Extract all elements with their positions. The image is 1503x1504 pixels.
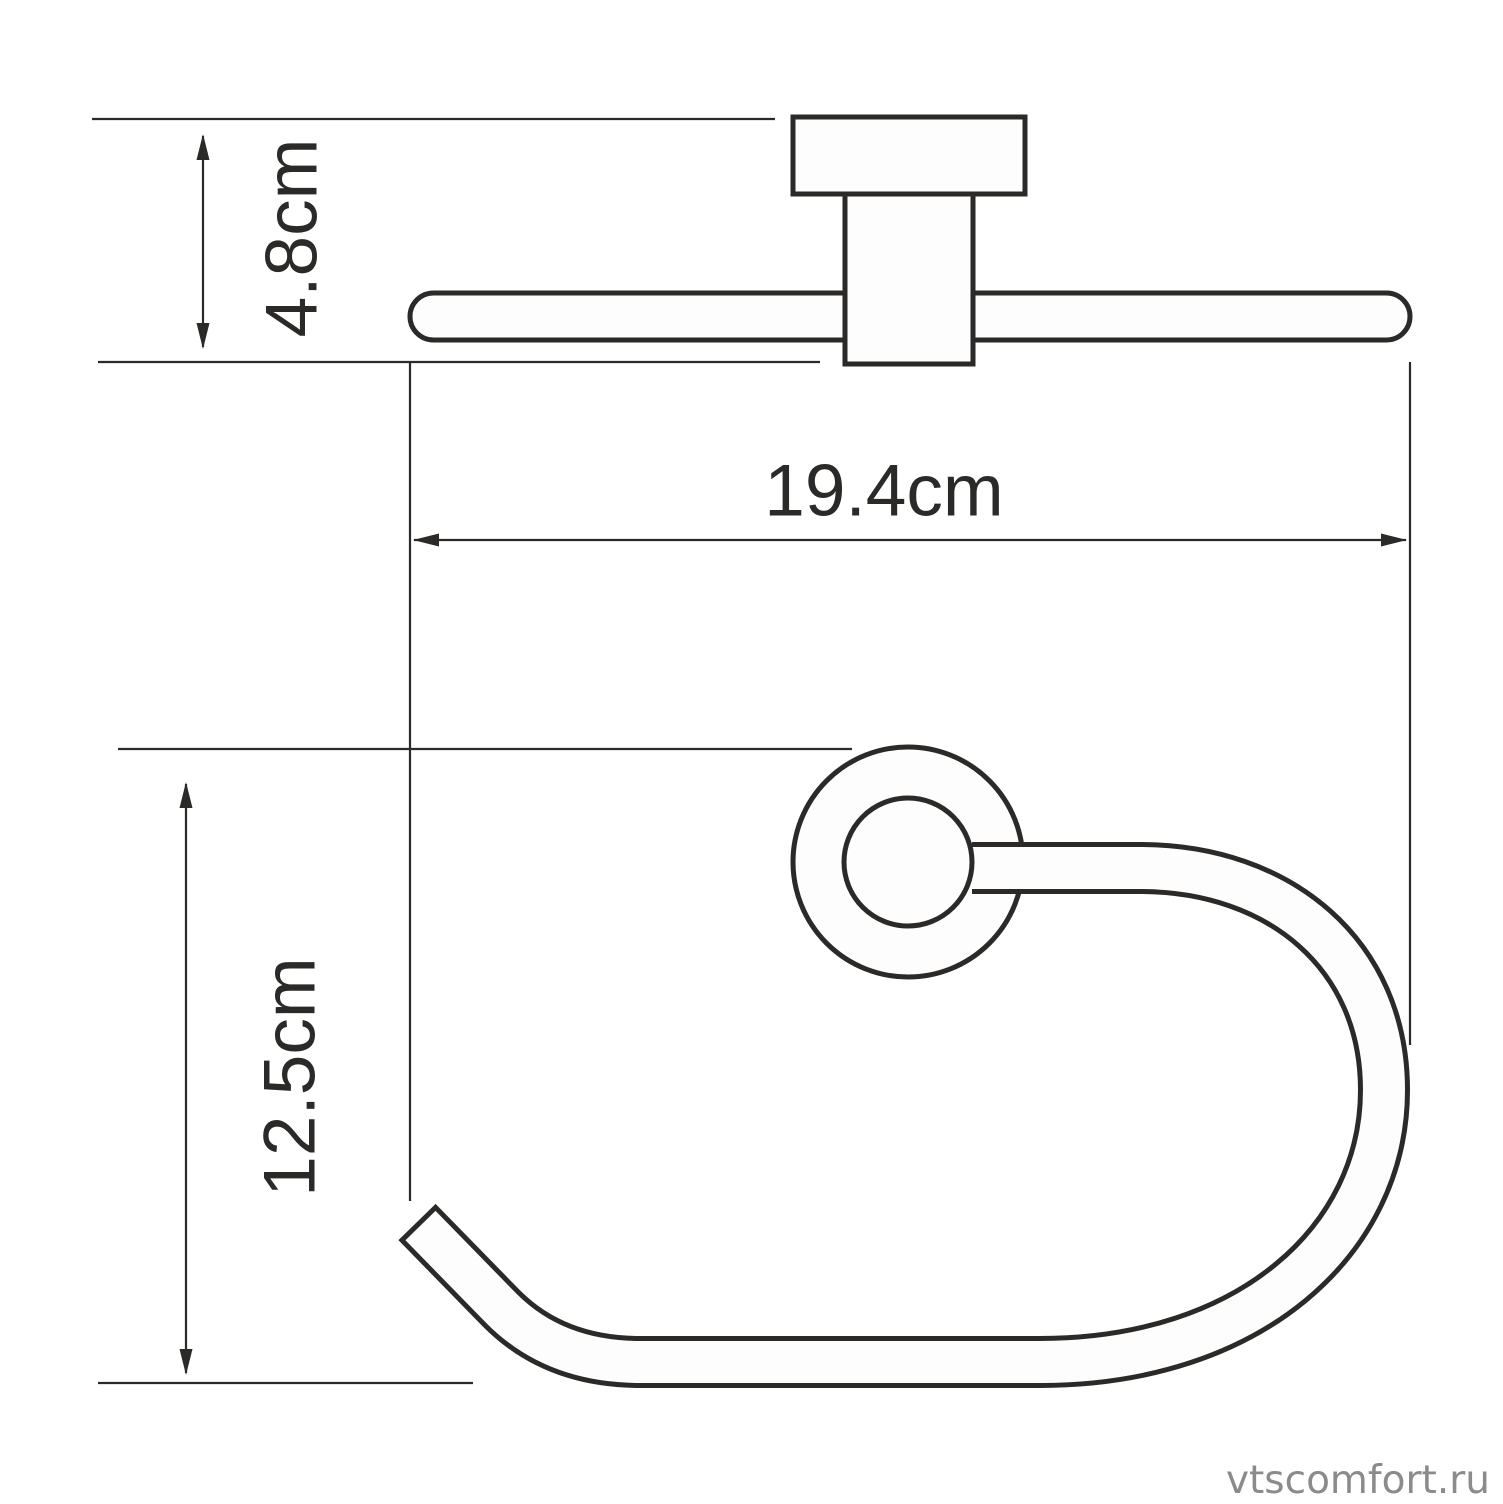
- depth-dimension-label: 4.8cm: [252, 139, 333, 338]
- arrowhead-down-icon: [197, 323, 210, 349]
- wall-plate: [793, 117, 1025, 194]
- height-dimension-label: 12.5cm: [250, 957, 331, 1196]
- arrowhead-down-icon: [180, 1349, 193, 1375]
- arrowhead-left-icon: [413, 534, 439, 547]
- arrowhead-up-icon: [180, 782, 193, 808]
- top-view: [410, 117, 1410, 364]
- technical-drawing-page: 4.8cm 19.4cm 12.5cm vtscomfort.ru: [0, 0, 1503, 1504]
- watermark-text: vtscomfort.ru: [1226, 1458, 1490, 1503]
- front-view: [417, 747, 1384, 1362]
- mount-post: [845, 194, 973, 364]
- width-dimension-label: 19.4cm: [764, 451, 1003, 532]
- arrowhead-right-icon: [1381, 534, 1407, 547]
- arrowhead-up-icon: [197, 134, 210, 160]
- mount-flange-inner-circle: [844, 798, 972, 926]
- dimension-drawing-canvas: 4.8cm 19.4cm 12.5cm vtscomfort.ru: [0, 0, 1503, 1504]
